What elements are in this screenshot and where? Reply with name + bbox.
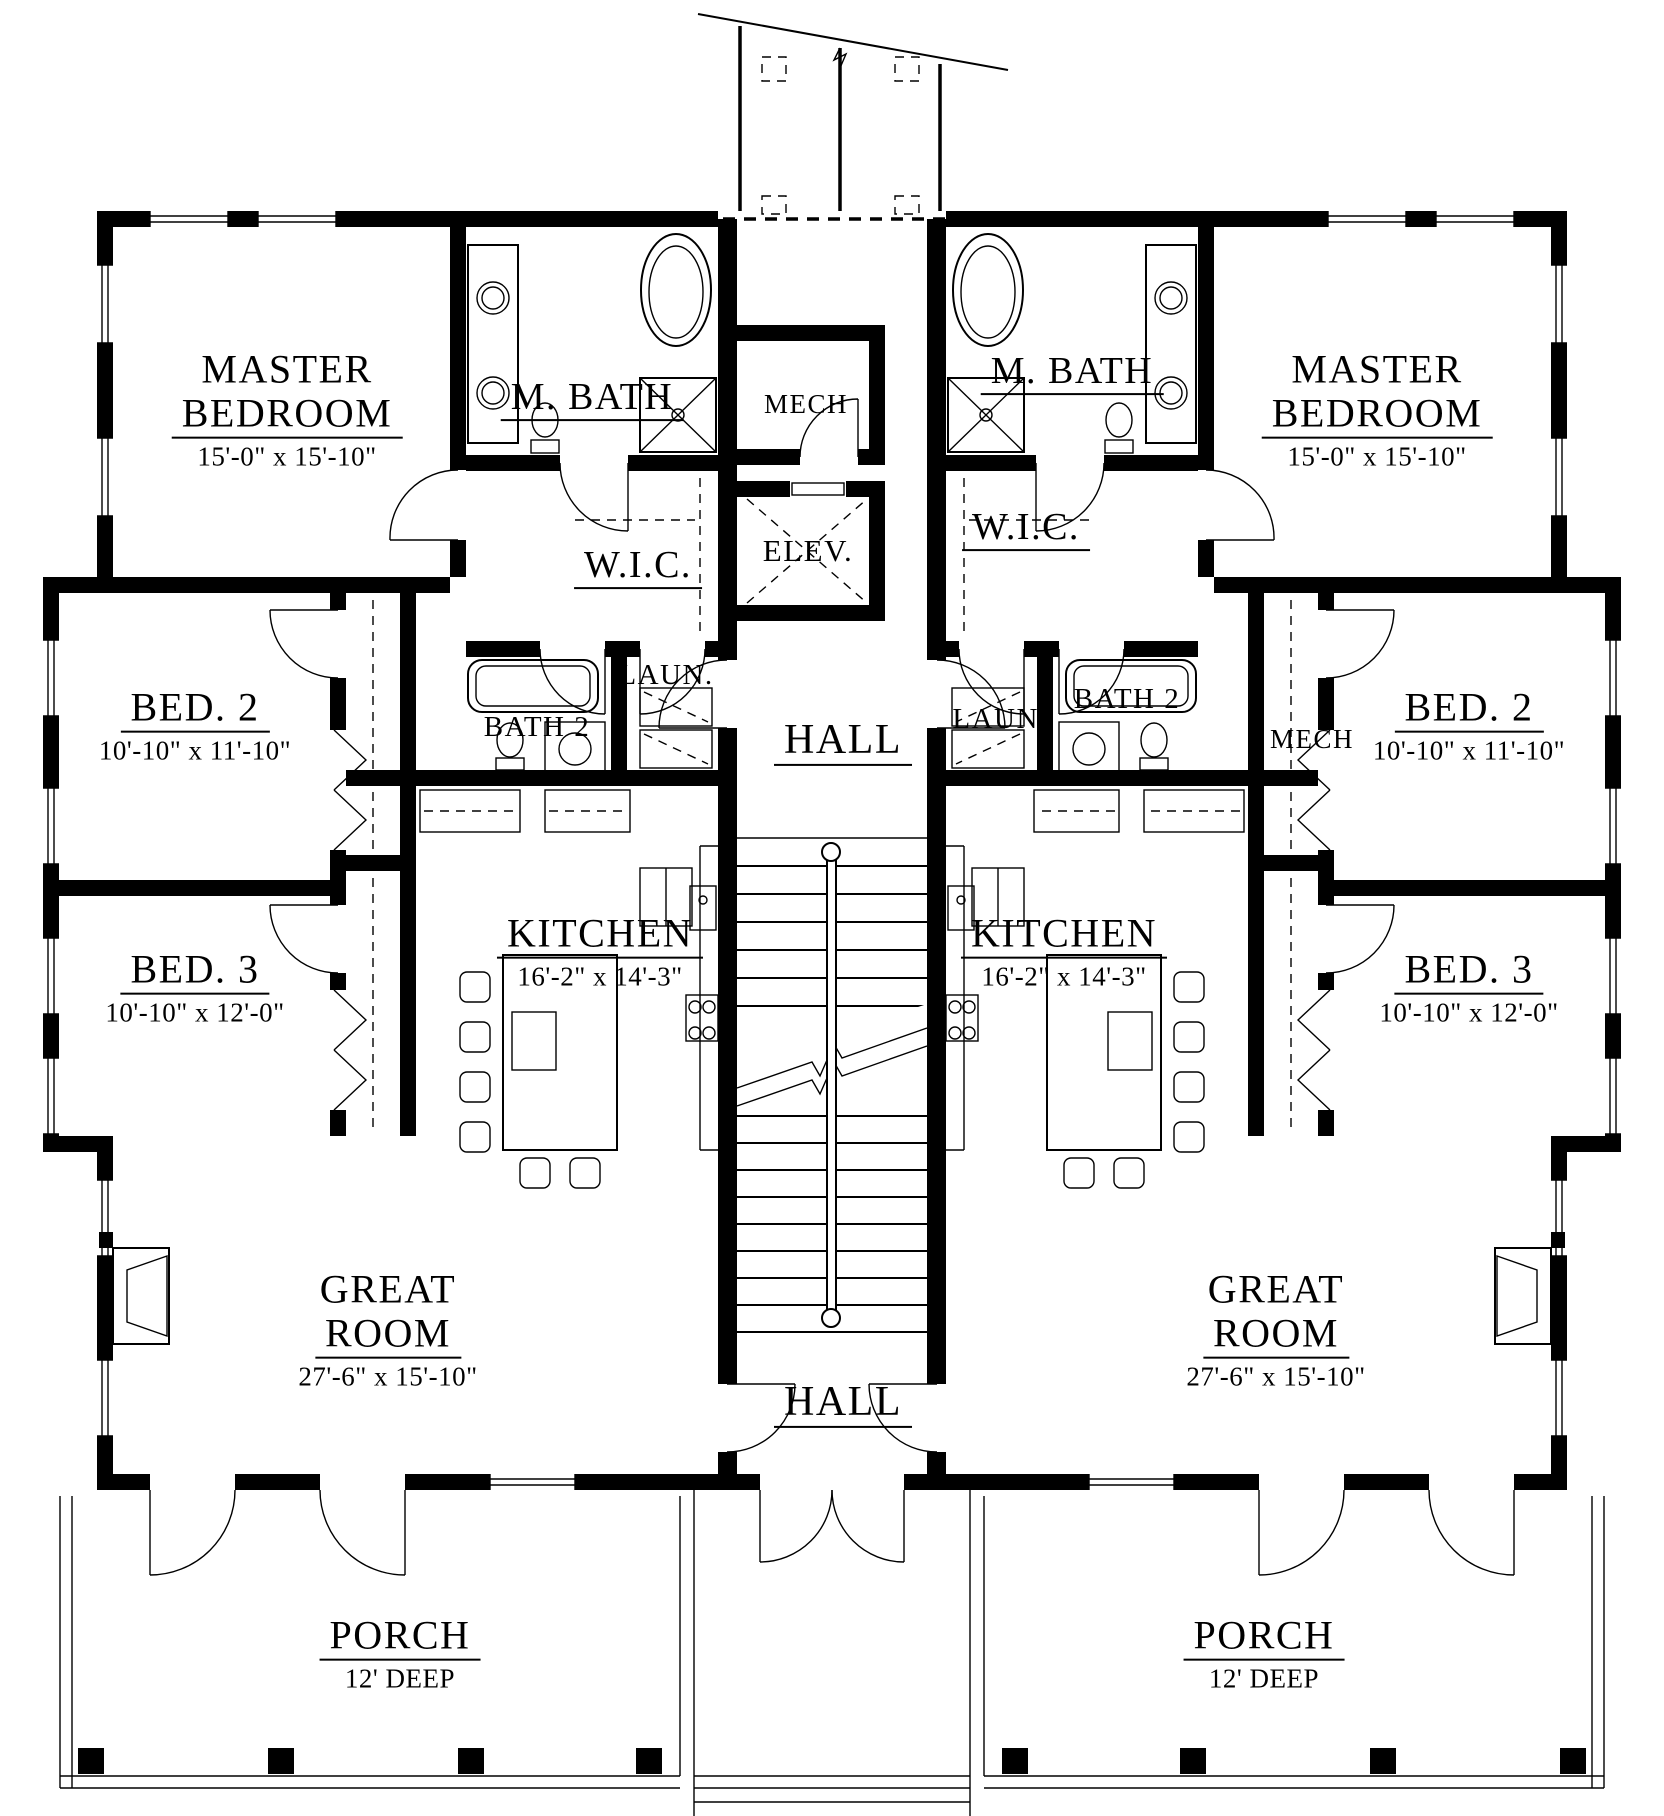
room-label-kitchen-left: KITCHEN 16'-2" x 14'-3": [497, 912, 703, 993]
room-label-hall-lower: HALL: [774, 1379, 912, 1425]
room-label-wic-left: W.I.C.: [574, 545, 702, 587]
room-label-bath2-right: BATH 2: [1074, 684, 1180, 716]
room-label-kitchen-right: KITCHEN 16'-2" x 14'-3": [961, 912, 1167, 993]
room-label-elevator: ELEV.: [763, 534, 853, 568]
stair-rail: [827, 852, 836, 1318]
entry-doors: [718, 1474, 946, 1562]
rear-walkway: [698, 14, 1008, 214]
room-label-bath2-left: BATH 2: [484, 712, 590, 744]
entry-steps: [694, 1776, 970, 1802]
room-label-porch-left: PORCH 12' DEEP: [320, 1614, 481, 1695]
floorplan-linework: [0, 0, 1664, 1816]
stairs: [737, 838, 927, 1332]
room-label-bed3-right: BED. 3 10'-10" x 12'-0": [1379, 948, 1558, 1029]
room-label-great-left: GREAT ROOM 27'-6" x 15'-10": [298, 1268, 477, 1393]
room-label-hall-upper: HALL: [774, 717, 912, 763]
room-label-mech-right: MECH: [1270, 725, 1354, 755]
room-label-master-right: MASTER BEDROOM 15'-0" x 15'-10": [1262, 348, 1493, 473]
room-label-master-left: MASTER BEDROOM 15'-0" x 15'-10": [172, 348, 403, 473]
room-label-mbath-right: M. BATH: [981, 351, 1164, 393]
room-label-bed3-left: BED. 3 10'-10" x 12'-0": [105, 948, 284, 1029]
room-label-laundry-left: LAUN.: [618, 660, 713, 692]
room-label-wic-right: W.I.C.: [962, 507, 1090, 549]
room-label-bed2-left: BED. 2 10'-10" x 11'-10": [99, 686, 291, 767]
room-label-porch-right: PORCH 12' DEEP: [1184, 1614, 1345, 1695]
room-label-laundry-right: LAUN.: [952, 704, 1047, 736]
room-label-great-right: GREAT ROOM 27'-6" x 15'-10": [1186, 1268, 1365, 1393]
duplex-floor-plan: MECH ELEV. HALL HALL MASTER BEDROOM 15'-…: [0, 0, 1664, 1816]
room-label-mech-core: MECH: [764, 390, 848, 420]
room-label-mbath-left: M. BATH: [501, 377, 684, 419]
room-label-bed2-right: BED. 2 10'-10" x 11'-10": [1373, 686, 1565, 767]
